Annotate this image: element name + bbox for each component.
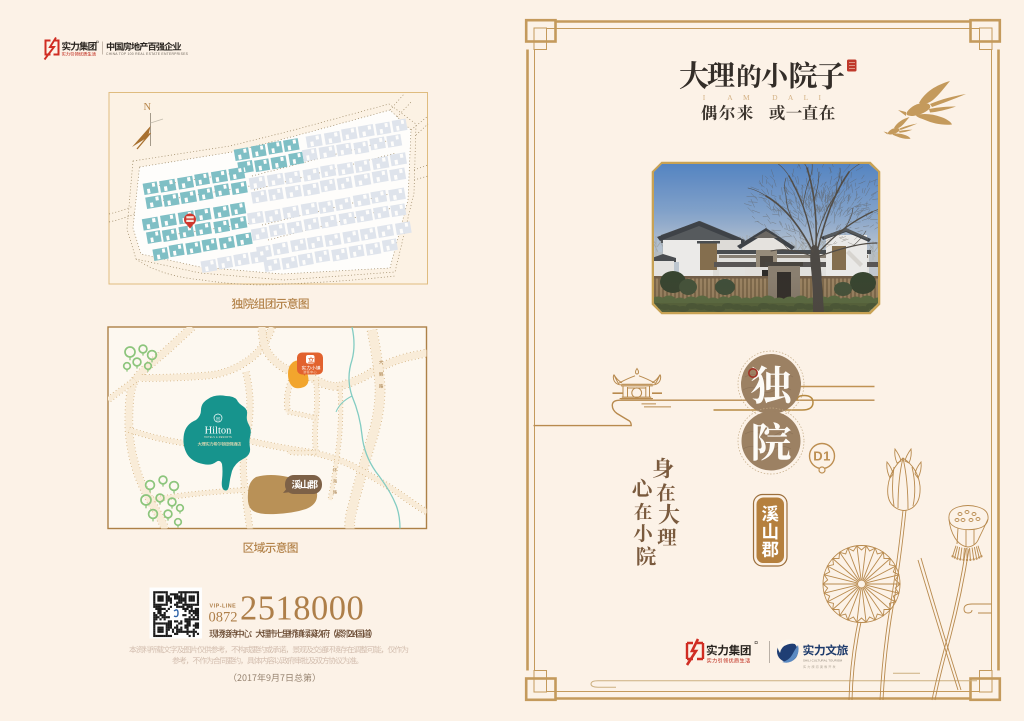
- svg-text:H: H: [216, 416, 220, 422]
- svg-text:2518000: 2518000: [240, 590, 364, 628]
- svg-text:HOTELS & RESORTS: HOTELS & RESORTS: [204, 436, 232, 439]
- svg-text:0872: 0872: [209, 610, 238, 626]
- svg-text:I AM DALI: I AM DALI: [703, 93, 832, 102]
- svg-text:CHINA TOP 100 REAL ESTATE ENTE: CHINA TOP 100 REAL ESTATE ENTERPRISES: [106, 52, 189, 56]
- svg-text:N: N: [144, 102, 152, 113]
- svg-text:D1: D1: [813, 449, 831, 464]
- svg-text:SHILI CULTURAL TOURISM: SHILI CULTURAL TOURISM: [803, 659, 843, 663]
